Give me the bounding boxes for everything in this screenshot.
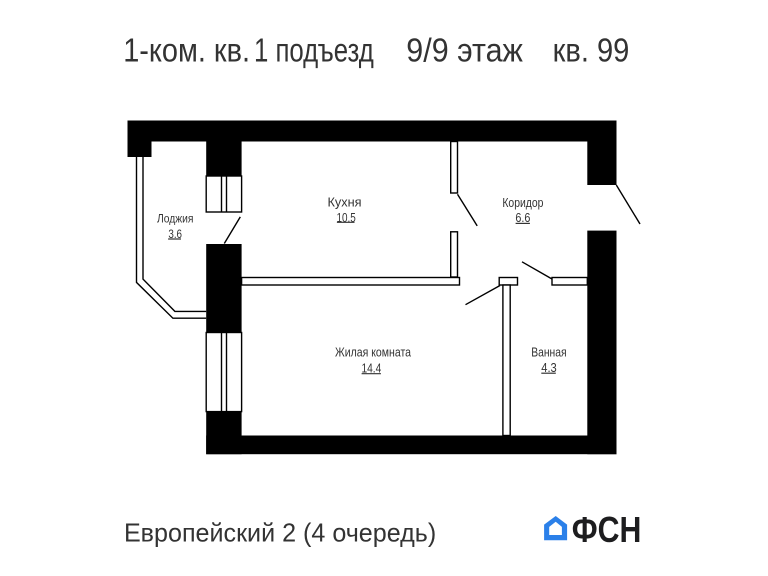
svg-text:Жилая комната: Жилая комната — [335, 345, 412, 360]
svg-text:Лоджия: Лоджия — [157, 214, 194, 226]
svg-text:Коридор: Коридор — [502, 195, 543, 210]
svg-text:1-ком. кв.: 1-ком. кв. — [123, 32, 250, 69]
svg-text:ФСН: ФСН — [572, 509, 642, 550]
svg-text:Ванная: Ванная — [531, 345, 566, 360]
svg-text:9/9 этаж: 9/9 этаж — [406, 32, 523, 69]
svg-text:кв. 99: кв. 99 — [553, 32, 630, 69]
svg-text:Европейский 2 (4 очередь): Европейский 2 (4 очередь) — [124, 518, 436, 548]
svg-text:1 подъезд: 1 подъезд — [254, 32, 374, 69]
svg-text:Кухня: Кухня — [327, 194, 361, 209]
